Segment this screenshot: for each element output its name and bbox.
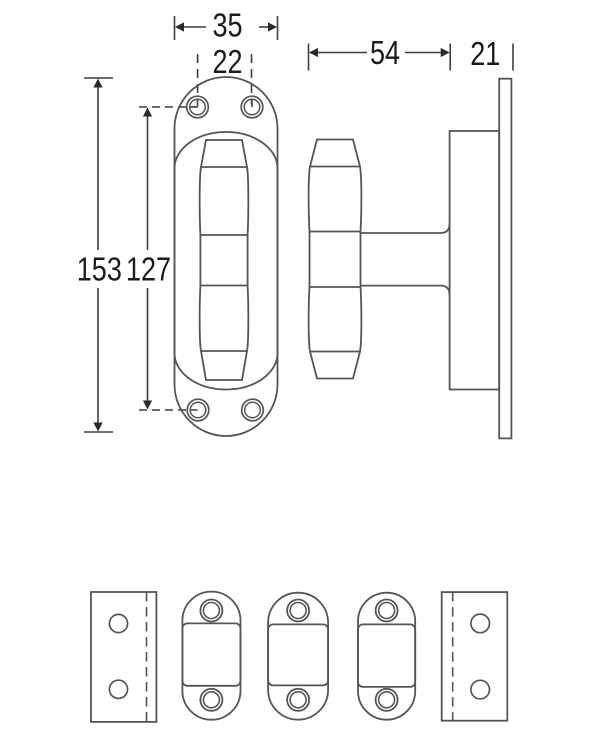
svg-text:35: 35 [212,8,242,44]
svg-text:153: 153 [77,252,122,288]
svg-text:22: 22 [212,45,242,81]
svg-text:54: 54 [370,36,400,72]
svg-text:127: 127 [126,252,171,288]
svg-text:21: 21 [470,36,500,72]
